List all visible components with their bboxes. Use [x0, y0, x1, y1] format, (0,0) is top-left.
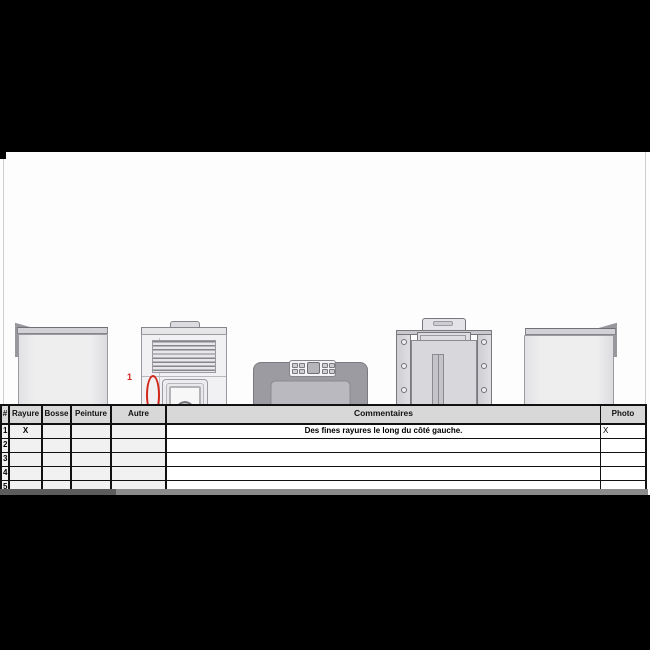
control-panel: [289, 360, 336, 377]
corner-tab: [0, 152, 6, 159]
rear-bolt-hole: [401, 363, 407, 369]
control-button: [322, 363, 328, 368]
header-peinture: Peinture: [72, 406, 112, 423]
table-header-row: # Rayure Bosse Peinture Autre Commentair…: [2, 406, 645, 425]
cell-photo: [601, 439, 645, 452]
cell-num: 4: [2, 467, 10, 480]
video-frame: 1: [0, 0, 650, 650]
cell-rayure: X: [10, 425, 43, 438]
sheet-right-edge: [645, 152, 646, 404]
cell-autre: [112, 453, 167, 466]
cell-bosse: [43, 467, 72, 480]
rear-upper-panel: [411, 340, 477, 408]
cell-rayure: [10, 453, 43, 466]
cell-autre: [112, 425, 167, 438]
control-button: [292, 369, 298, 374]
header-num: #: [2, 406, 10, 423]
cell-autre: [112, 439, 167, 452]
cell-peinture: [72, 453, 112, 466]
header-autre: Autre: [112, 406, 167, 423]
cell-peinture: [72, 439, 112, 452]
rear-bolt-hole: [401, 387, 407, 393]
defect-annotation-number: 1: [127, 372, 132, 382]
rear-bolt-hole: [481, 339, 487, 345]
table-row: 1 X Des fines rayures le long du côté ga…: [2, 425, 645, 439]
cell-bosse: [43, 425, 72, 438]
control-button: [329, 369, 335, 374]
table-row: 4: [2, 467, 645, 481]
inspection-table: # Rayure Bosse Peinture Autre Commentair…: [0, 404, 647, 495]
cell-photo: [601, 453, 645, 466]
rear-bolt-hole: [401, 339, 407, 345]
cell-commentaires: [167, 453, 601, 466]
letterbox-top: [0, 0, 650, 152]
header-commentaires: Commentaires: [167, 406, 601, 423]
cell-commentaires: Des fines rayures le long du côté gauche…: [167, 425, 601, 438]
cell-commentaires: [167, 439, 601, 452]
rear-duct-seam: [438, 355, 439, 405]
cell-rayure: [10, 467, 43, 480]
cell-autre: [112, 467, 167, 480]
header-rayure: Rayure: [10, 406, 43, 423]
letterbox-bottom: [0, 495, 650, 650]
cell-commentaires: [167, 467, 601, 480]
cell-photo: [601, 467, 645, 480]
rear-bolt-hole: [481, 387, 487, 393]
control-button: [322, 369, 328, 374]
cell-rayure: [10, 439, 43, 452]
table-row: 2: [2, 439, 645, 453]
table-row: 3: [2, 453, 645, 467]
side-top-bar: [525, 328, 616, 335]
side-top-bar: [17, 327, 108, 334]
cell-bosse: [43, 453, 72, 466]
cell-bosse: [43, 439, 72, 452]
control-button: [329, 363, 335, 368]
cell-peinture: [72, 467, 112, 480]
rear-bolt-hole: [481, 363, 487, 369]
control-button: [299, 363, 305, 368]
control-button: [299, 369, 305, 374]
cell-num: 2: [2, 439, 10, 452]
cell-num: 3: [2, 453, 10, 466]
control-button: [292, 363, 298, 368]
front-air-grille: [152, 340, 216, 373]
control-display: [307, 362, 320, 374]
cell-peinture: [72, 425, 112, 438]
cell-photo: X: [601, 425, 645, 438]
cell-num: 1: [2, 425, 10, 438]
header-photo: Photo: [601, 406, 645, 423]
rear-bracket-slot: [433, 321, 453, 326]
header-bosse: Bosse: [43, 406, 72, 423]
